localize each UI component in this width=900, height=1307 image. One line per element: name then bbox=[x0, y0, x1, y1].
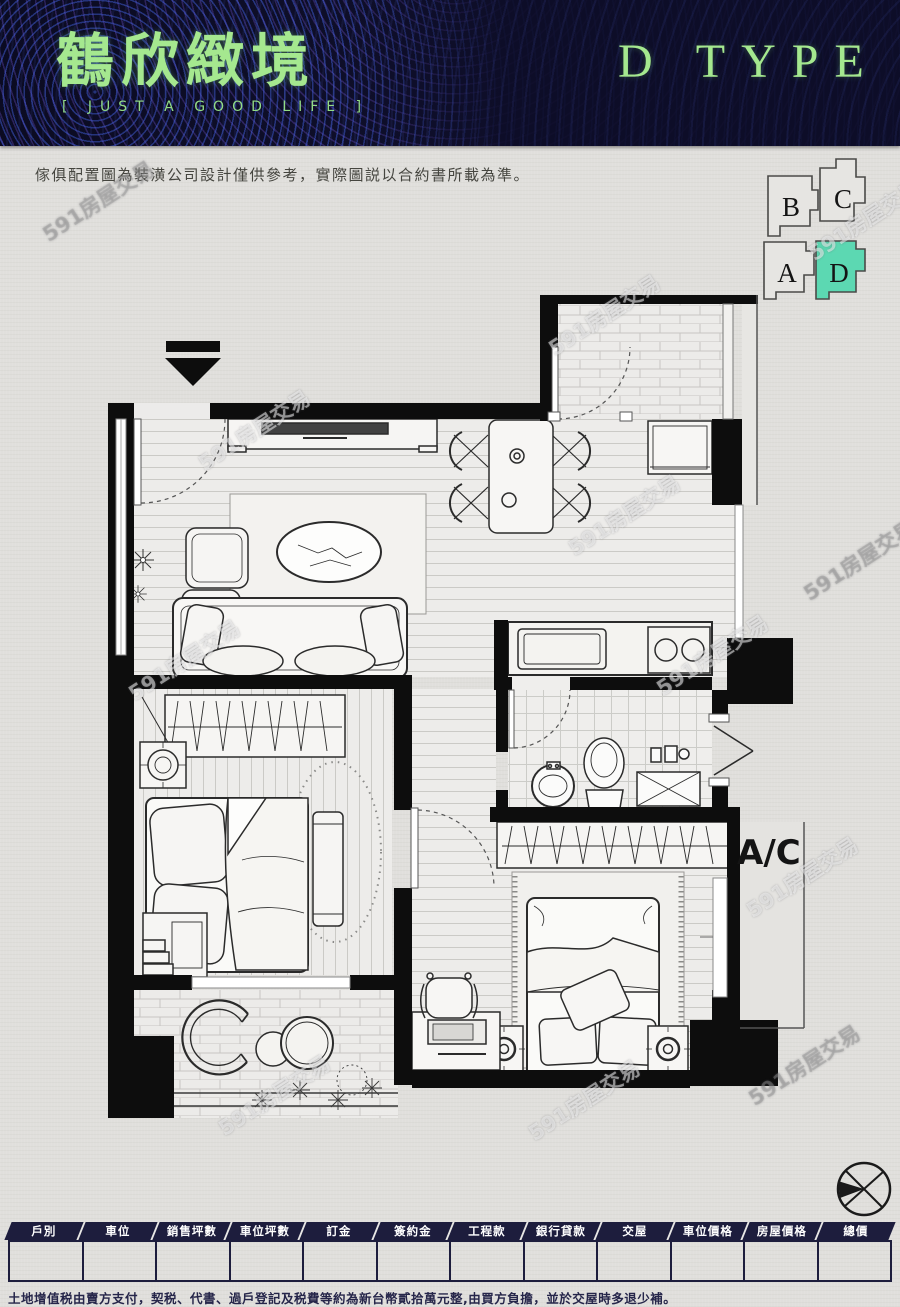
bed-bench bbox=[313, 812, 343, 926]
header-banner: 鶴欣緻境 [ JUST A GOOD LIFE ] D TYPE bbox=[0, 0, 900, 146]
desk bbox=[412, 1012, 500, 1070]
hallway-floor bbox=[412, 689, 496, 822]
price-table-row bbox=[8, 1240, 892, 1282]
col-header: 銷售坪數 bbox=[150, 1222, 231, 1240]
ac-label: A/C bbox=[737, 833, 801, 873]
balcony-glass bbox=[723, 304, 733, 419]
master-window bbox=[192, 977, 350, 988]
bedroom2-wardrobe bbox=[497, 822, 733, 868]
laundry-balcony-floor bbox=[558, 304, 723, 419]
tv-console bbox=[228, 419, 437, 452]
table-cell bbox=[155, 1242, 229, 1280]
col-header: 車位 bbox=[76, 1222, 157, 1240]
linen-cabinet bbox=[637, 772, 700, 806]
outdoor-ledge bbox=[742, 304, 757, 505]
side-table-large bbox=[281, 1017, 333, 1069]
plan-type-label: D TYPE bbox=[618, 34, 880, 89]
col-header: 總價 bbox=[814, 1222, 895, 1240]
table-cell bbox=[670, 1242, 744, 1280]
table-cell bbox=[376, 1242, 450, 1280]
col-header: 銀行貸款 bbox=[519, 1222, 600, 1240]
dining-table bbox=[489, 420, 553, 533]
table-cell bbox=[229, 1242, 303, 1280]
disclaimer-text: 傢俱配置圖為裝潢公司設計僅供參考，實際圖説以合約書所載為準。 bbox=[35, 164, 530, 185]
kitchen-furniture bbox=[508, 622, 712, 675]
table-cell bbox=[449, 1242, 523, 1280]
refrigerator bbox=[648, 421, 712, 474]
compass-icon bbox=[838, 1163, 890, 1215]
project-slogan: [ JUST A GOOD LIFE ] bbox=[62, 99, 369, 115]
unit-key-A-label: A bbox=[777, 258, 797, 288]
col-header: 房屋價格 bbox=[741, 1222, 822, 1240]
project-title: 鶴欣緻境 bbox=[56, 14, 316, 98]
kitchen-sink bbox=[518, 629, 606, 669]
unit-key-C-label: C bbox=[834, 184, 852, 214]
col-header: 車位價格 bbox=[667, 1222, 748, 1240]
shower-door bbox=[709, 714, 753, 786]
flyer-page: 鶴欣緻境 [ JUST A GOOD LIFE ] D TYPE 傢俱配置圖為裝… bbox=[0, 0, 900, 1307]
kitchen-window bbox=[735, 505, 743, 638]
dresser bbox=[143, 913, 207, 977]
unit-key-B-label: B bbox=[782, 192, 800, 222]
toilet bbox=[584, 738, 624, 808]
unit-key-diagram: B C A D bbox=[745, 152, 895, 304]
col-header: 戶別 bbox=[4, 1222, 83, 1240]
col-header: 交屋 bbox=[593, 1222, 674, 1240]
col-header: 車位坪數 bbox=[224, 1222, 305, 1240]
table-cell bbox=[596, 1242, 670, 1280]
stove bbox=[648, 627, 710, 673]
sofa bbox=[173, 598, 407, 678]
table-cell bbox=[82, 1242, 156, 1280]
col-header: 訂金 bbox=[298, 1222, 379, 1240]
coffee-table bbox=[277, 522, 381, 582]
table-cell bbox=[302, 1242, 376, 1280]
table-cell bbox=[743, 1242, 817, 1280]
price-table-header: 戶別 車位 銷售坪數 車位坪數 訂金 簽約金 工程款 銀行貸款 交屋 車位價格 … bbox=[4, 1222, 895, 1240]
tv bbox=[262, 423, 388, 434]
footnote-text: 土地增值税由賣方支付，契税、代書、過戶登記及税費等約為新台幣貳拾萬元整,由買方負… bbox=[8, 1288, 676, 1307]
bedroom2-window bbox=[713, 878, 727, 997]
bedroom2-bed bbox=[527, 898, 659, 1078]
unit-key-D-label: D bbox=[829, 258, 849, 288]
washing-machine bbox=[140, 742, 186, 788]
price-table: 戶別 車位 銷售坪數 車位坪數 訂金 簽約金 工程款 銀行貸款 交屋 車位價格 … bbox=[8, 1222, 892, 1282]
nightstand-right bbox=[646, 1026, 690, 1072]
entry-arrow-icon bbox=[165, 341, 221, 386]
bath-shelf-items bbox=[651, 746, 689, 762]
col-header: 工程款 bbox=[445, 1222, 526, 1240]
table-cell bbox=[523, 1242, 597, 1280]
col-header: 簽約金 bbox=[372, 1222, 453, 1240]
table-cell bbox=[817, 1242, 891, 1280]
floor-plan: A/C bbox=[100, 285, 900, 1225]
table-cell bbox=[10, 1242, 82, 1280]
